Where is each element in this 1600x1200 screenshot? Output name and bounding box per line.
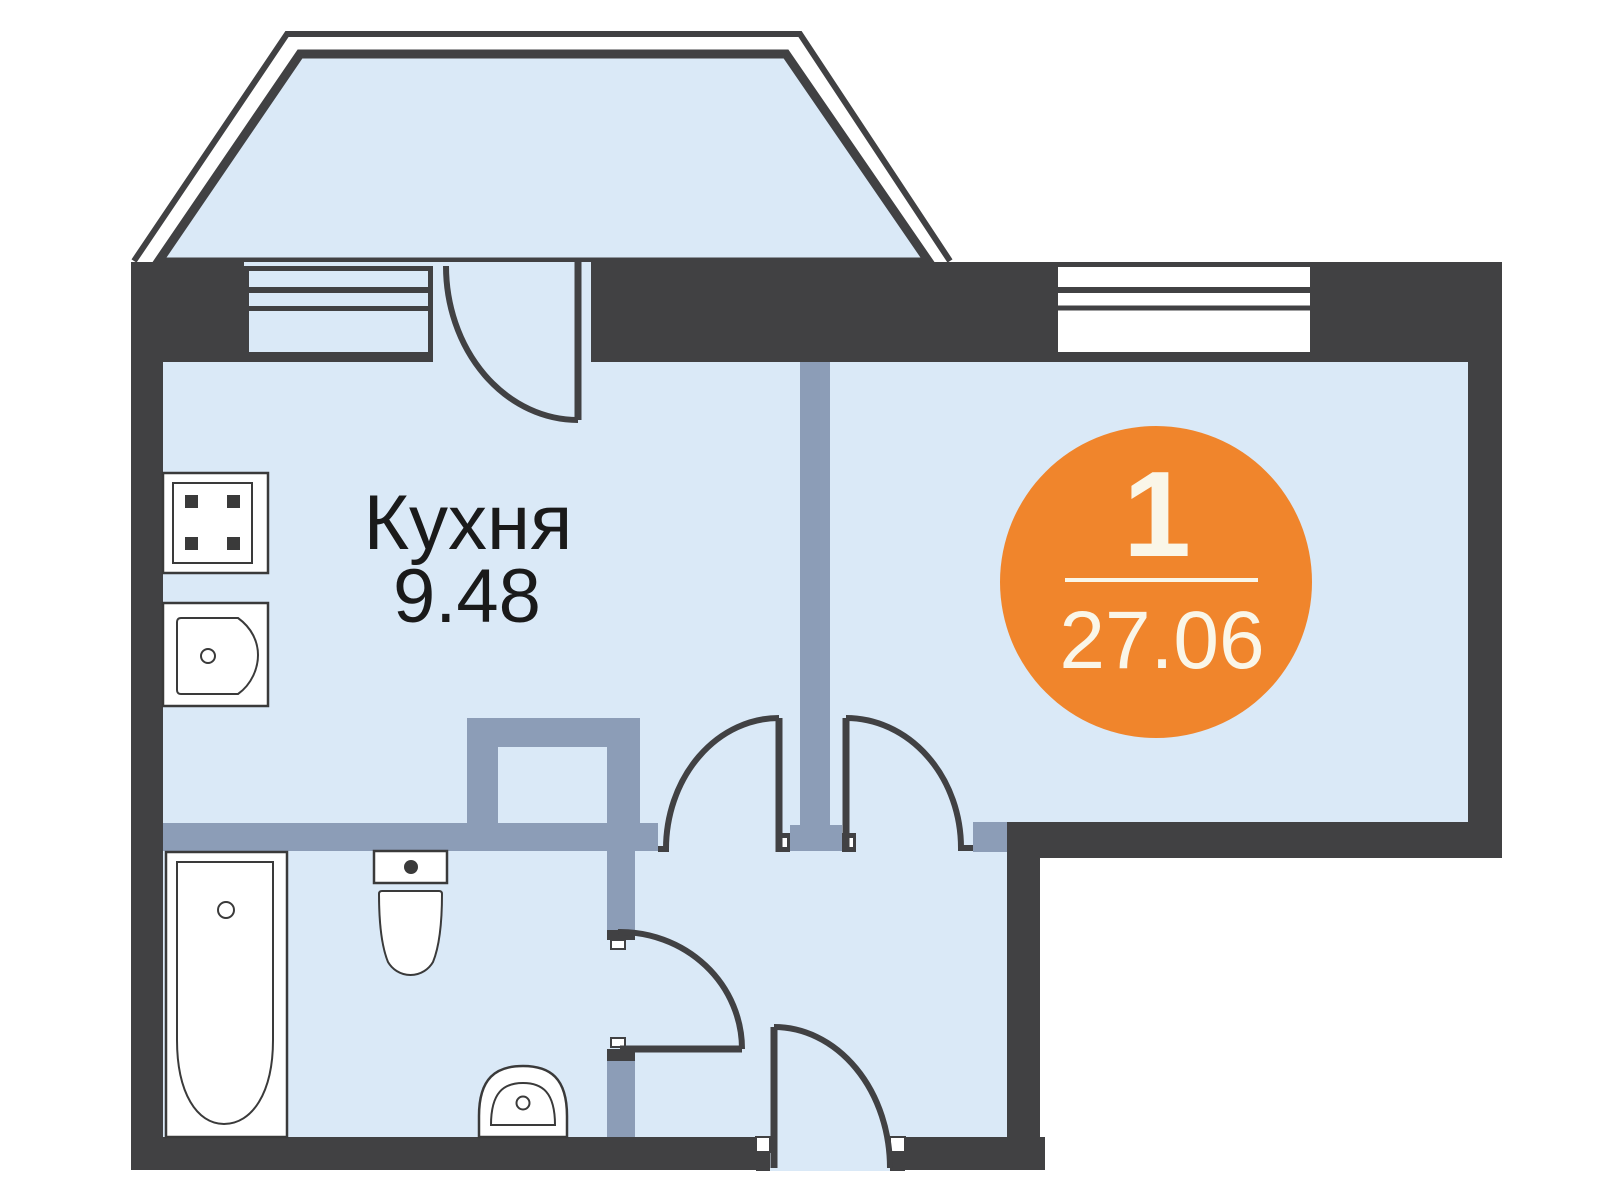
partition-bathroom-right-upper xyxy=(607,851,635,930)
floorplan-canvas: Кухня 9.48 1 27.06 xyxy=(0,0,1600,1200)
toilet-button xyxy=(404,860,418,874)
floorplan-page: Кухня 9.48 1 27.06 xyxy=(0,0,1600,1200)
partition-bathroom-top xyxy=(163,823,658,851)
balcony-door-opening xyxy=(433,262,591,362)
stove-top xyxy=(173,483,252,563)
floor-entrance-threshold xyxy=(769,1137,890,1171)
toilet-bowl xyxy=(379,891,442,975)
stove-burner xyxy=(227,495,240,508)
kitchen-sink-basin xyxy=(177,618,258,694)
living-room-window xyxy=(1053,267,1315,352)
wall-right xyxy=(1468,262,1502,858)
bathroom-sink xyxy=(479,1066,567,1137)
floor-lower-rooms xyxy=(163,822,1007,1137)
stove-burner xyxy=(227,537,240,550)
entrance-door-stop-notch xyxy=(890,1137,905,1152)
partition-stub xyxy=(973,822,1007,852)
wall-bottom-left xyxy=(131,1137,756,1170)
stove-burner xyxy=(185,495,198,508)
bay-window-interior xyxy=(158,54,929,262)
stove-burner xyxy=(185,537,198,550)
wall-left xyxy=(131,262,163,1170)
kitchen-window xyxy=(244,262,433,357)
stove xyxy=(163,473,268,573)
partition-foot xyxy=(790,825,842,851)
kitchen-sink-drain xyxy=(201,649,215,663)
wall-hallway-right xyxy=(1007,822,1040,1170)
kitchen-sink xyxy=(163,603,268,706)
bathroom-sink-faucet xyxy=(517,1097,530,1110)
badge-room-count: 1 xyxy=(1123,446,1191,582)
entrance-door-jamb-left xyxy=(756,1152,770,1171)
badge-total-area: 27.06 xyxy=(1059,595,1264,686)
entrance-door-stop-notch xyxy=(756,1137,770,1152)
room-area: 9.48 xyxy=(393,554,541,639)
partition-kitchen-living xyxy=(800,362,830,825)
bathroom-door-stop-notch xyxy=(611,940,625,949)
bathtub-drain xyxy=(218,902,234,918)
bay-window xyxy=(134,34,950,262)
toilet xyxy=(374,851,447,975)
apartment-badge: 1 27.06 xyxy=(1000,426,1312,738)
partition-bathroom-right-lower xyxy=(607,1060,635,1137)
room-name: Кухня xyxy=(364,478,573,566)
wall-living-room-bottom xyxy=(1007,822,1502,858)
duct-shaft-hole xyxy=(498,747,607,823)
wall-bottom-right xyxy=(905,1137,1045,1170)
bathtub xyxy=(166,852,287,1137)
